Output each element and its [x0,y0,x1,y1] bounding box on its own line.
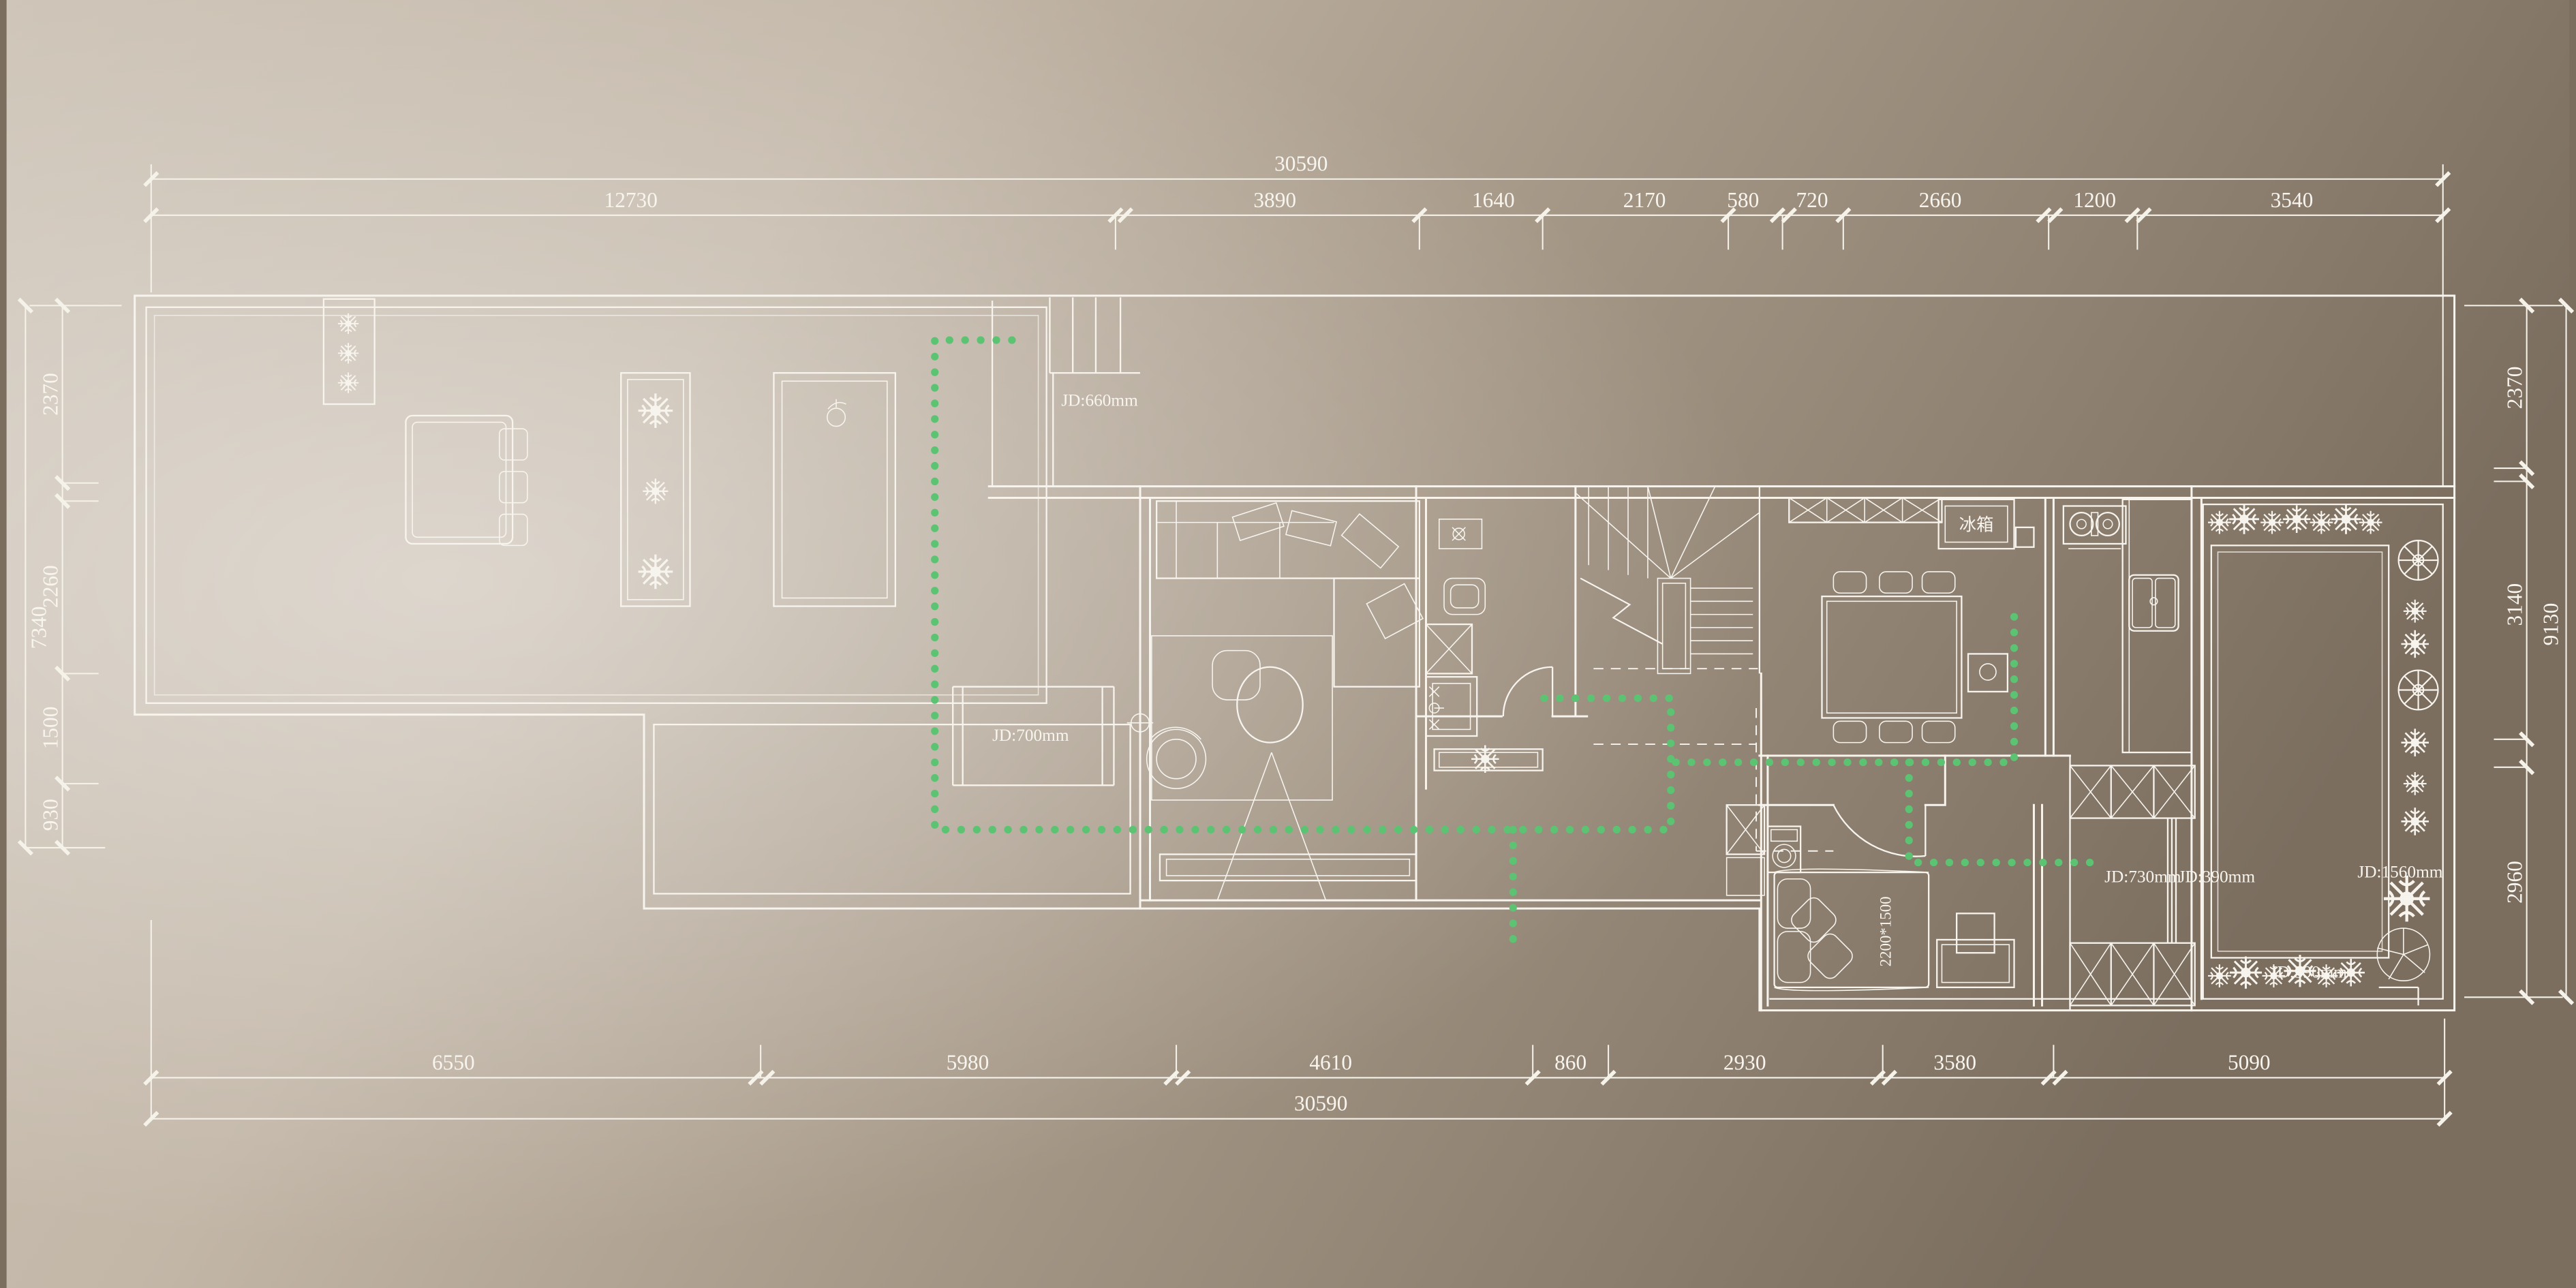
label-jd390b: JD:390mm [2271,962,2348,981]
dim-top-total: 30590 [1274,152,1328,176]
dim-top-seg-0: 12730 [604,188,658,212]
dim-bottom-seg-3: 860 [1554,1050,1586,1074]
dim-left-total: 7340 [27,607,51,649]
label-jd700: JD:700mm [992,726,1069,745]
dim-bottom-seg-4: 2930 [1723,1050,1766,1074]
label-jd660: JD:660mm [1061,390,1138,410]
dim-left-seg-1: 2260 [38,565,62,608]
dim-top-seg-6: 2660 [1919,188,1962,212]
dim-top-seg-1: 3890 [1253,188,1296,212]
dim-right-seg-1: 3140 [2502,583,2526,626]
dim-bottom-seg-1: 5980 [947,1050,990,1074]
label-fridge: 冰箱 [1959,516,1994,535]
dim-bottom-seg-2: 4610 [1309,1050,1352,1074]
dim-left-seg-3: 930 [38,799,62,831]
dim-top-seg-4: 580 [1727,188,1759,212]
dim-top-seg-3: 2170 [1623,188,1666,212]
dim-top-seg-8: 3540 [2271,188,2314,212]
dim-left-seg-0: 2370 [38,373,62,416]
floorplan-stage: 30590 12730 3890 1640 2170 580 720 2660 … [0,0,2576,1288]
dim-top-seg-2: 1640 [1472,188,1515,212]
dim-bottom-seg-0: 6550 [432,1050,475,1074]
dim-right-seg-2: 2960 [2502,861,2526,904]
dim-right-seg-0: 2370 [2502,367,2526,410]
floorplan-svg: 30590 12730 3890 1640 2170 580 720 2660 … [0,0,2576,1288]
dim-left-seg-2: 1500 [38,707,62,750]
dim-top-seg-5: 720 [1796,188,1828,212]
dim-bottom-seg-6: 5090 [2228,1050,2271,1074]
label-bed-size: 2200*1500 [1877,896,1895,966]
dim-bottom-total: 30590 [1294,1092,1347,1116]
label-jd730: JD:730mm [2104,868,2181,887]
dim-bottom-seg-5: 3580 [1933,1050,1976,1074]
label-jd390: JD:390mm [2179,868,2256,887]
dim-top-seg-7: 1200 [2073,188,2116,212]
label-jd1560: JD:1560mm [2357,862,2442,881]
dim-right-total: 9130 [2539,603,2562,646]
